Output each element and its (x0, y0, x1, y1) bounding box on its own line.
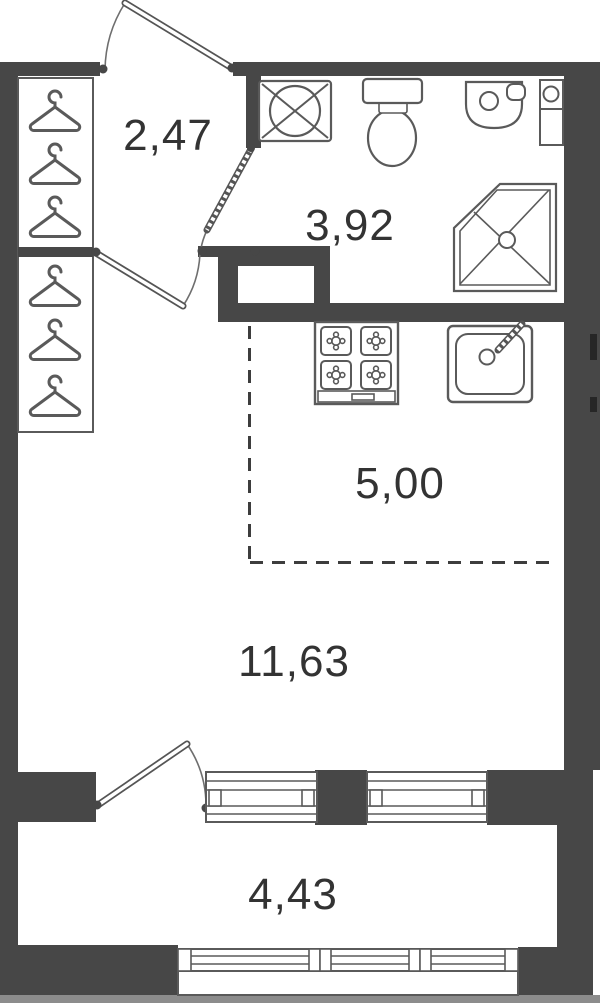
wardrobe (18, 78, 93, 432)
room-area-label-balcony: 4,43 (248, 870, 338, 920)
stove-4-burner-icon (315, 322, 398, 404)
kitchen-sink-icon (448, 324, 532, 402)
room-area-label-bathroom: 3,92 (305, 201, 395, 251)
room-area-label-kitchen-zone: 5,00 (355, 459, 445, 509)
balcony-window-sill (206, 772, 487, 822)
hallway-door (92, 247, 260, 307)
floor-plan: 2,47 3,92 5,00 11,63 4,43 (0, 0, 600, 1003)
entrance-door (99, 3, 237, 74)
room-area-label-living-room: 11,63 (238, 637, 350, 687)
washbasin-icon (466, 82, 525, 128)
balcony-door (93, 744, 211, 813)
fixtures-layer (0, 0, 600, 1003)
room-area-label-hallway: 2,47 (123, 111, 213, 161)
balcony-glazing (178, 949, 518, 995)
shower-cabin-icon (454, 184, 556, 291)
water-heater-icon (540, 80, 563, 145)
toilet-icon (363, 79, 422, 166)
washing-machine-icon (259, 81, 331, 141)
